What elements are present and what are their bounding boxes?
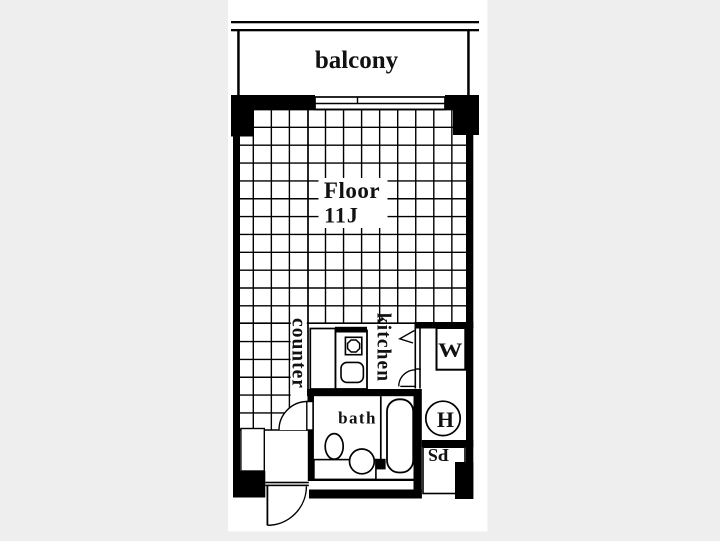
svg-text:balcony: balcony (315, 47, 399, 74)
svg-text:kitchen: kitchen (372, 313, 393, 382)
svg-text:11J: 11J (324, 203, 359, 228)
svg-text:Floor: Floor (324, 178, 380, 203)
svg-text:PS: PS (428, 445, 449, 465)
svg-text:W: W (438, 339, 462, 361)
svg-text:H: H (437, 407, 454, 432)
svg-text:counter: counter (287, 318, 308, 389)
svg-text:bath: bath (338, 409, 377, 428)
